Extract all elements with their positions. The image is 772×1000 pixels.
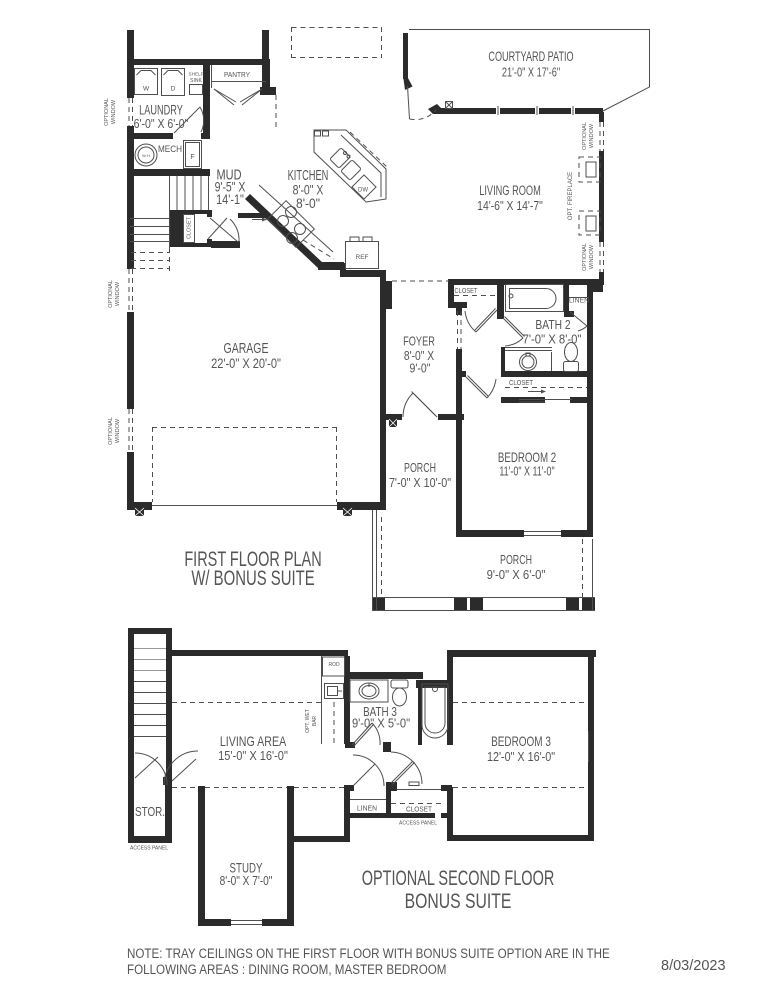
- svg-text:WINDOW: WINDOW: [111, 99, 117, 124]
- svg-text:FOLLOWING AREAS : DINING ROOM,: FOLLOWING AREAS : DINING ROOM, MASTER BE…: [127, 961, 446, 977]
- svg-text:8'-0" X 7'-0": 8'-0" X 7'-0": [220, 874, 273, 888]
- svg-text:15'-0" X 16'-0": 15'-0" X 16'-0": [218, 748, 288, 763]
- svg-text:ACCESS PANEL: ACCESS PANEL: [399, 821, 437, 827]
- svg-text:OPTIONAL: OPTIONAL: [108, 417, 114, 445]
- svg-text:COURTYARD PATIO: COURTYARD PATIO: [488, 48, 573, 65]
- svg-text:OPTIONAL: OPTIONAL: [108, 280, 114, 308]
- svg-text:BEDROOM 2: BEDROOM 2: [498, 451, 556, 466]
- svg-text:REF: REF: [356, 254, 369, 261]
- svg-text:WINDOW: WINDOW: [589, 244, 595, 269]
- svg-text:F: F: [190, 154, 194, 161]
- svg-text:OPTIONAL: OPTIONAL: [104, 98, 110, 126]
- svg-text:CLOSET: CLOSET: [406, 806, 432, 813]
- svg-text:7'-0" X 10'-0": 7'-0" X 10'-0": [389, 475, 451, 490]
- svg-text:WINDOW: WINDOW: [115, 418, 121, 443]
- svg-text:OPT. FIREPLACE: OPT. FIREPLACE: [568, 172, 574, 220]
- svg-text:SINK: SINK: [190, 78, 202, 84]
- svg-text:ACCESS PANEL: ACCESS PANEL: [130, 846, 168, 852]
- svg-text:OPTIONAL: OPTIONAL: [582, 122, 588, 150]
- svg-text:BAR: BAR: [312, 715, 318, 726]
- svg-text:8'-0": 8'-0": [296, 195, 320, 211]
- svg-text:MECH: MECH: [158, 143, 182, 154]
- svg-text:PORCH: PORCH: [404, 461, 436, 475]
- svg-text:LIVING AREA: LIVING AREA: [220, 734, 287, 750]
- svg-text:14'-1": 14'-1": [216, 192, 244, 208]
- svg-text:LINEN: LINEN: [569, 297, 589, 304]
- svg-text:W/ BONUS SUITE: W/ BONUS SUITE: [191, 567, 314, 590]
- svg-text:BATH 2: BATH 2: [535, 318, 570, 332]
- svg-text:21'-0" X 17'-6": 21'-0" X 17'-6": [502, 66, 560, 80]
- svg-text:ROD: ROD: [328, 662, 340, 668]
- svg-text:14'-6" X 14'-7": 14'-6" X 14'-7": [477, 199, 543, 213]
- svg-text:6'-0" X 6'-0": 6'-0" X 6'-0": [134, 116, 189, 131]
- svg-text:STOR.: STOR.: [135, 806, 165, 820]
- svg-text:W: W: [143, 86, 150, 93]
- svg-text:OPT. WET: OPT. WET: [305, 709, 311, 733]
- svg-text:DW: DW: [358, 188, 368, 194]
- svg-text:OPTIONAL: OPTIONAL: [582, 243, 588, 271]
- svg-text:GARAGE: GARAGE: [224, 339, 269, 356]
- svg-text:CLOSET: CLOSET: [509, 380, 533, 388]
- svg-text:11'-0" X 11'-0": 11'-0" X 11'-0": [499, 465, 554, 479]
- svg-text:CLOSET: CLOSET: [455, 288, 478, 296]
- svg-text:12'-0" X 16'-0": 12'-0" X 16'-0": [487, 749, 555, 764]
- svg-text:FOYER: FOYER: [403, 335, 435, 349]
- svg-text:D: D: [171, 86, 176, 93]
- svg-text:BEDROOM 3: BEDROOM 3: [491, 733, 551, 749]
- svg-text:LINEN: LINEN: [357, 805, 377, 812]
- svg-text:8/03/2023: 8/03/2023: [661, 958, 726, 974]
- svg-text:WINDOW: WINDOW: [589, 123, 595, 148]
- svg-text:9'-0" X 6'-0": 9'-0" X 6'-0": [487, 567, 546, 582]
- svg-text:OPTIONAL SECOND FLOOR: OPTIONAL SECOND FLOOR: [362, 866, 555, 889]
- svg-text:BONUS SUITE: BONUS SUITE: [405, 889, 512, 913]
- svg-text:9'-0": 9'-0": [410, 360, 431, 375]
- svg-text:NOTE: TRAY CEILINGS ON THE FIR: NOTE: TRAY CEILINGS ON THE FIRST FLOOR W…: [127, 945, 610, 961]
- svg-text:PANTRY: PANTRY: [224, 72, 250, 79]
- svg-text:CLOSET: CLOSET: [187, 216, 193, 239]
- svg-text:7'-0" X 8'-0": 7'-0" X 8'-0": [523, 332, 582, 347]
- svg-text:9'-0" X 5'-0": 9'-0" X 5'-0": [352, 716, 410, 731]
- svg-text:WINDOW: WINDOW: [115, 281, 121, 306]
- svg-text:22'-0" X 20'-0": 22'-0" X 20'-0": [211, 356, 281, 372]
- svg-text:SHELF: SHELF: [189, 71, 204, 77]
- svg-text:LIVING ROOM: LIVING ROOM: [479, 182, 541, 199]
- svg-text:W-H: W-H: [142, 153, 150, 158]
- svg-text:PORCH: PORCH: [500, 553, 532, 567]
